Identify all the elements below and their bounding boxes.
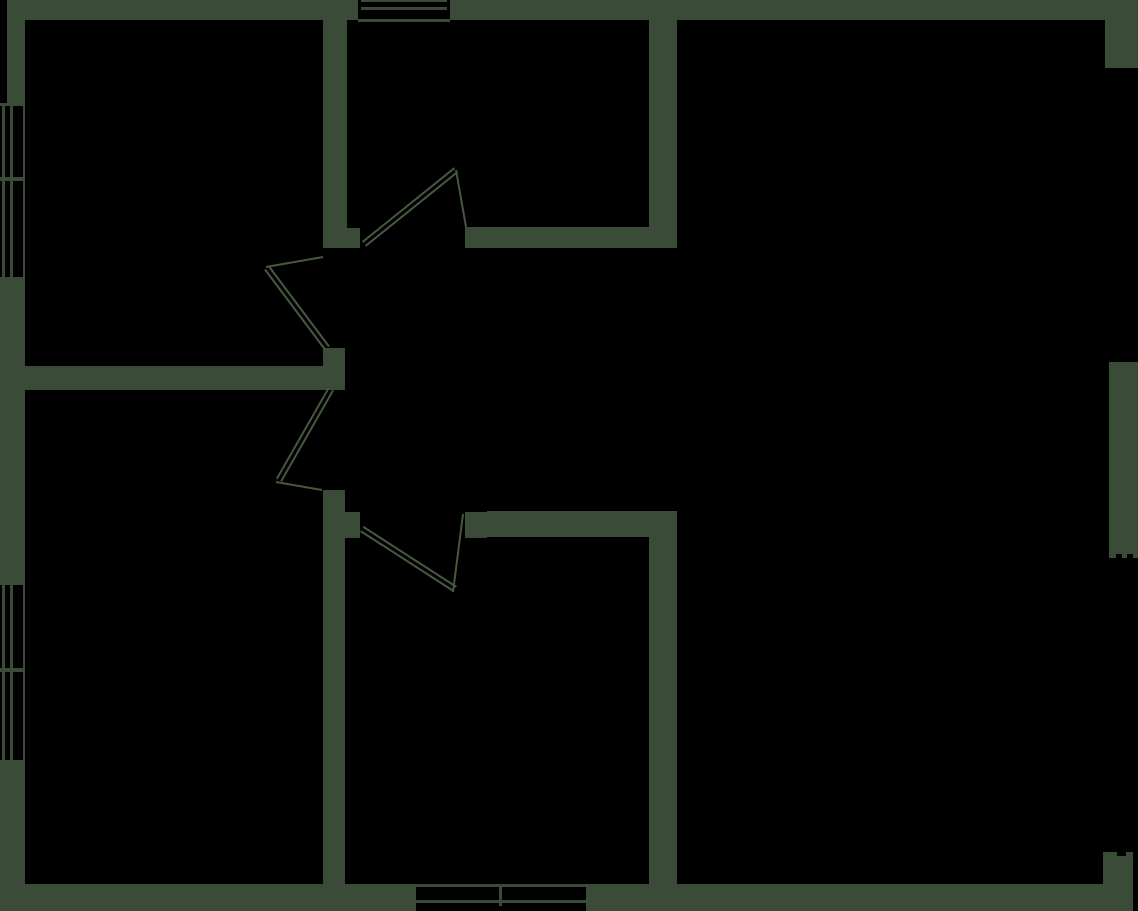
plan-background: [0, 0, 1138, 911]
left-window1-inner-face: [23, 103, 25, 280]
right-wall-notch-2: [1127, 554, 1133, 559]
bottom-window-mullion: [499, 884, 502, 906]
floor-plan: [0, 0, 1138, 911]
interior-wall-h1: [25, 366, 345, 390]
door4-left-jamb: [345, 512, 360, 538]
door4-right-jamb: [465, 512, 487, 538]
bottom-wall-right: [586, 884, 1133, 911]
floor-plan-canvas: [0, 0, 1138, 911]
left-window1-mullion: [0, 177, 25, 181]
right-wall-middle: [1109, 362, 1138, 558]
interior-wall-h2: [465, 227, 677, 248]
left-wall-upper: [7, 20, 25, 103]
interior-wall-v1-upper: [323, 20, 347, 228]
left-window2-mullion: [0, 668, 25, 672]
right-wall-bottom-corner: [1103, 852, 1133, 884]
left-window2-inner-face: [23, 582, 25, 763]
left-window2-outer-glass: [2, 582, 5, 763]
left-window2-inner-glass: [10, 582, 13, 763]
interior-wall-v2-upper: [649, 20, 677, 247]
right-wall-notch-1: [1116, 554, 1122, 559]
top-window-opening: [358, 0, 450, 22]
right-wall-top-corner: [1105, 20, 1138, 68]
left-wall-lower: [0, 763, 25, 884]
interior-wall-v2-lower: [649, 537, 677, 884]
bottom-wall-left: [0, 884, 416, 911]
bottom-corner-notch: [1117, 852, 1126, 856]
left-window1-inner-glass: [10, 103, 13, 280]
left-wall-middle: [0, 280, 25, 582]
top-window-sill-line: [358, 19, 450, 22]
top-wall: [7, 0, 1138, 20]
left-window1-outer-glass: [2, 103, 5, 280]
top-window-glass-line: [361, 7, 447, 10]
interior-wall-v1-lower: [323, 490, 345, 884]
top-window-outer-line: [361, 0, 447, 2]
door1-left-jamb: [323, 228, 360, 248]
interior-wall-h3: [487, 511, 677, 537]
door2-bottom-jamb: [323, 348, 345, 366]
